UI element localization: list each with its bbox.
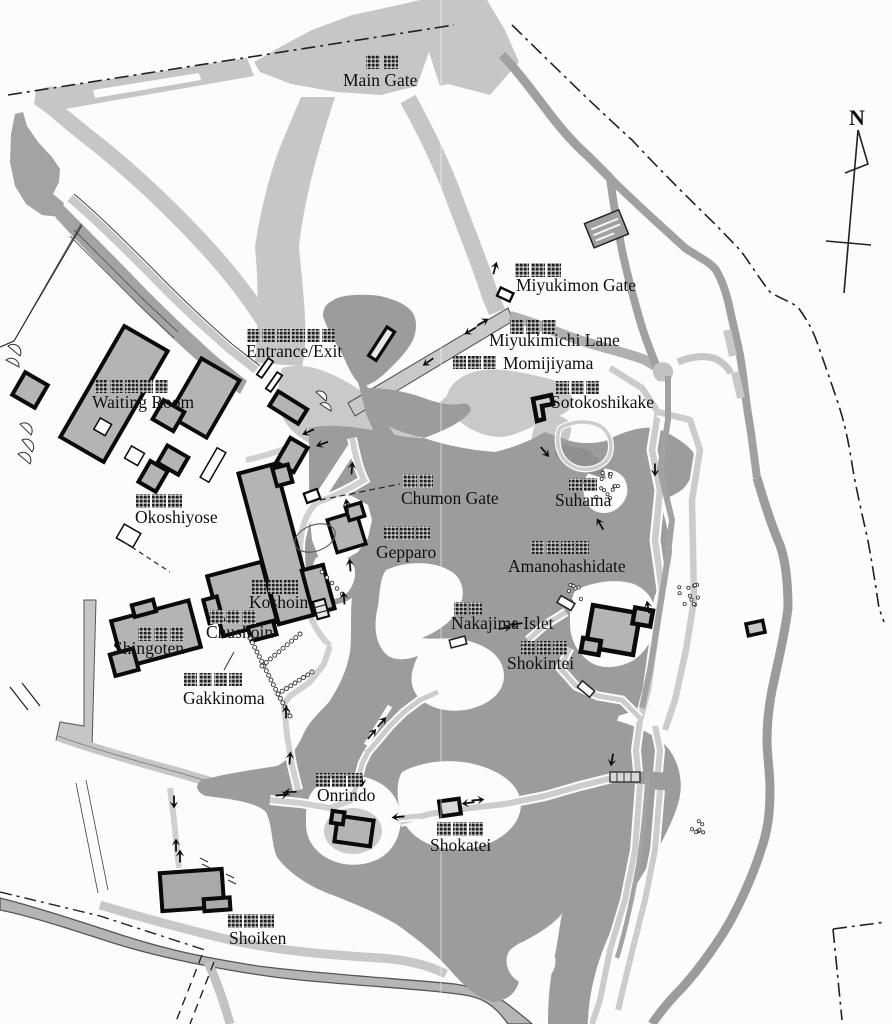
svg-text:Gepparo: Gepparo — [376, 542, 437, 562]
svg-text:Koshoin: Koshoin — [249, 592, 309, 612]
svg-text:Momijiyama: Momijiyama — [503, 353, 594, 373]
svg-text:Shingoten: Shingoten — [113, 638, 184, 658]
svg-text:Nakajima Islet: Nakajima Islet — [451, 613, 554, 633]
svg-text:Chushoin: Chushoin — [206, 622, 273, 642]
svg-text:Gakkinoma: Gakkinoma — [183, 688, 265, 708]
svg-text:Miyukimon Gate: Miyukimon Gate — [516, 275, 636, 295]
svg-text:Chumon Gate: Chumon Gate — [401, 488, 499, 508]
svg-text:Shoiken: Shoiken — [229, 928, 287, 948]
svg-text:Shokintei: Shokintei — [507, 653, 574, 673]
svg-text:Entrance/Exit: Entrance/Exit — [246, 341, 342, 361]
svg-text:Shokatei: Shokatei — [430, 835, 491, 855]
svg-text:Miyukimichi Lane: Miyukimichi Lane — [489, 330, 620, 350]
svg-text:Sotokoshikake: Sotokoshikake — [551, 392, 654, 412]
svg-text:N: N — [849, 105, 865, 130]
svg-text:Waiting Room: Waiting Room — [92, 392, 195, 412]
svg-text:Main Gate: Main Gate — [343, 70, 418, 90]
svg-text:Suhama: Suhama — [555, 490, 612, 510]
svg-text:Amanohashidate: Amanohashidate — [508, 556, 626, 576]
svg-text:Okoshiyose: Okoshiyose — [135, 507, 218, 527]
svg-text:Onrindo: Onrindo — [317, 785, 376, 805]
